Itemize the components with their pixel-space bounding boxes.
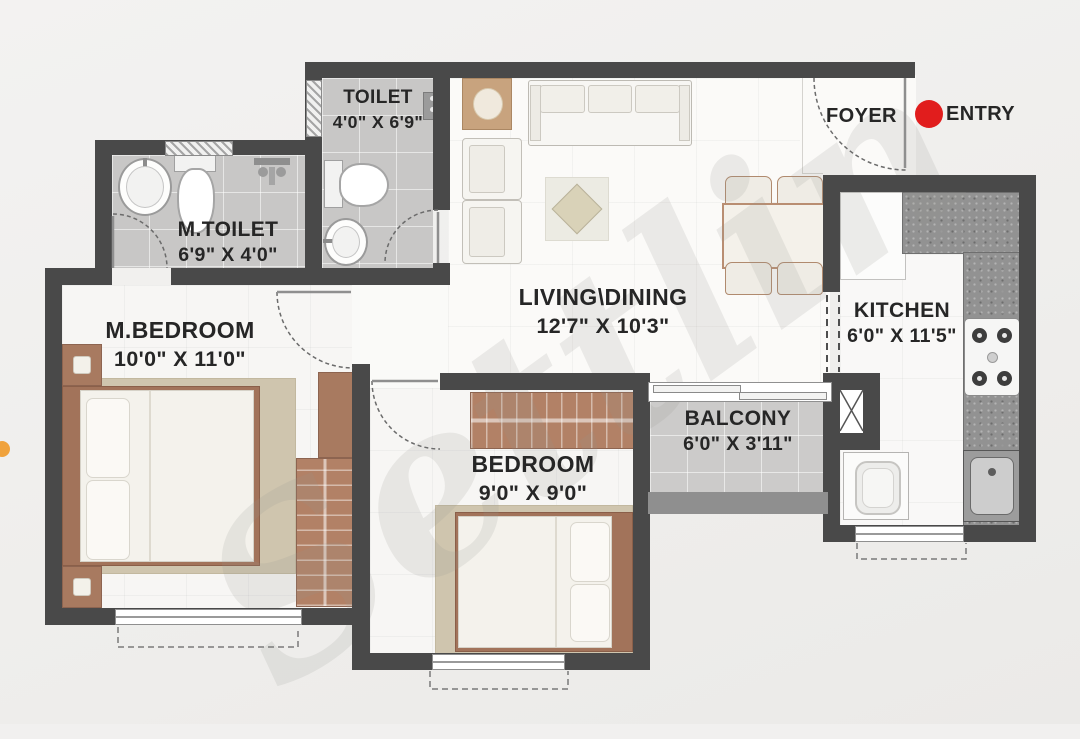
rug xyxy=(545,177,609,241)
room-dims: 12'7" X 10'3" xyxy=(519,313,688,341)
wall-kitchen-left-upper xyxy=(823,175,840,292)
nightstand xyxy=(62,566,102,608)
balcony-sliding-door xyxy=(648,382,832,402)
bedroom-wardrobe xyxy=(470,392,635,449)
foyer-boundary-line xyxy=(802,173,823,174)
burner-icon xyxy=(997,328,1012,343)
kitchen-sink xyxy=(963,450,1021,522)
shower-mixer-icon xyxy=(250,154,294,192)
room-label-toilet: TOILET 4'0" X 6'9" xyxy=(333,86,423,134)
sofa xyxy=(528,80,692,146)
dresser xyxy=(318,372,354,458)
pillow xyxy=(86,398,130,478)
kitchen-window-sill xyxy=(857,543,966,559)
duct-shaft xyxy=(838,388,865,434)
wc-toilet xyxy=(324,160,388,208)
room-dims: 4'0" X 6'9" xyxy=(333,111,423,134)
wall-bedroom-right xyxy=(633,373,650,670)
blanket-fold xyxy=(149,391,151,561)
sofa-armrest xyxy=(679,85,690,141)
kitchen-counter xyxy=(840,192,906,280)
wall-top xyxy=(305,62,915,78)
kitchen-window xyxy=(855,526,964,542)
wall-kitchen-right xyxy=(1019,175,1036,542)
room-dims: 6'0" X 3'11" xyxy=(683,432,793,457)
room-name: M.TOILET xyxy=(178,216,279,243)
edge-marker-dot xyxy=(0,441,10,457)
room-name: TOILET xyxy=(333,86,423,111)
room-dims: 6'0" X 11'5" xyxy=(847,324,957,349)
room-name: BALCONY xyxy=(683,405,793,432)
room-name: M.BEDROOM xyxy=(105,316,254,346)
wall-toilet-bottom xyxy=(322,268,450,285)
armchair xyxy=(462,138,522,200)
floorplan-canvas: Settlin xyxy=(0,0,1080,724)
lamp-icon xyxy=(73,356,91,374)
sink-basin-icon xyxy=(970,457,1014,515)
washing-machine xyxy=(843,452,909,520)
side-table-decor xyxy=(462,78,512,130)
lamp-icon xyxy=(73,578,91,596)
room-label-m-bedroom: M.BEDROOM 10'0" X 11'0" xyxy=(105,316,254,374)
wall-duct-bottom xyxy=(823,433,880,450)
decor-plate-icon xyxy=(473,88,503,120)
dining-chair xyxy=(725,262,772,295)
sofa-armrest xyxy=(530,85,541,141)
bedroom-window xyxy=(432,654,565,670)
room-name: LIVING\DINING xyxy=(519,283,688,313)
washer-drum-icon xyxy=(855,461,901,515)
wall-mtoilet-left xyxy=(95,140,112,285)
blanket-fold xyxy=(555,517,557,647)
pillow xyxy=(86,480,130,560)
coffee-table xyxy=(552,184,603,235)
stove-knob-icon xyxy=(987,352,998,363)
balcony-parapet xyxy=(648,492,828,514)
room-name: KITCHEN xyxy=(847,297,957,324)
pillow xyxy=(570,522,610,582)
washbasin xyxy=(118,158,172,216)
burner-icon xyxy=(997,371,1012,386)
ventilator-window xyxy=(165,141,233,156)
washbasin xyxy=(324,218,368,266)
room-label-m-toilet: M.TOILET 6'9" X 4'0" xyxy=(178,216,279,269)
armchair xyxy=(462,200,522,264)
slider-panel xyxy=(653,385,741,393)
sofa-cushions xyxy=(540,85,680,113)
room-label-balcony: BALCONY 6'0" X 3'11" xyxy=(683,405,793,458)
wall-mbedroom-left xyxy=(45,268,62,625)
mbedroom-window-sill xyxy=(118,627,298,647)
granite-platform-top xyxy=(902,192,1021,254)
stove-hob xyxy=(964,318,1020,396)
burner-icon xyxy=(972,371,987,386)
tap-icon xyxy=(143,158,147,170)
wall-toilet-right-upper xyxy=(433,62,450,210)
pillow xyxy=(570,584,610,642)
master-wardrobe xyxy=(296,458,354,607)
room-label-bedroom: BEDROOM 9'0" X 9'0" xyxy=(472,450,595,508)
entry-label: ENTRY xyxy=(946,103,1015,126)
bedroom-window-sill xyxy=(430,671,568,689)
room-name: BEDROOM xyxy=(472,450,595,480)
wall-toilet-right-stub xyxy=(433,263,450,285)
ventilator-window xyxy=(306,80,322,137)
room-dims: 6'9" X 4'0" xyxy=(178,243,279,268)
wall-kitchen-top xyxy=(823,175,1036,192)
room-label-living-dining: LIVING\DINING 12'7" X 10'3" xyxy=(519,283,688,341)
nightstand xyxy=(62,344,102,386)
dining-table xyxy=(722,203,827,269)
wall-bedroom-top xyxy=(440,373,650,390)
room-label-kitchen: KITCHEN 6'0" X 11'5" xyxy=(847,297,957,350)
foyer-label: FOYER xyxy=(826,105,897,128)
slider-panel xyxy=(739,392,827,400)
tap-icon xyxy=(323,239,335,243)
wall-mtoilet-bottom xyxy=(171,268,322,285)
wall-bedrooms-divider xyxy=(352,364,370,670)
burner-icon xyxy=(972,328,987,343)
dining-chair xyxy=(777,262,823,295)
foyer-boundary-line xyxy=(802,78,803,174)
m-bedroom-window xyxy=(115,609,302,625)
wc-bowl xyxy=(339,163,389,207)
room-dims: 10'0" X 11'0" xyxy=(105,346,254,374)
room-dims: 9'0" X 9'0" xyxy=(472,480,595,508)
entry-dot xyxy=(915,100,943,128)
